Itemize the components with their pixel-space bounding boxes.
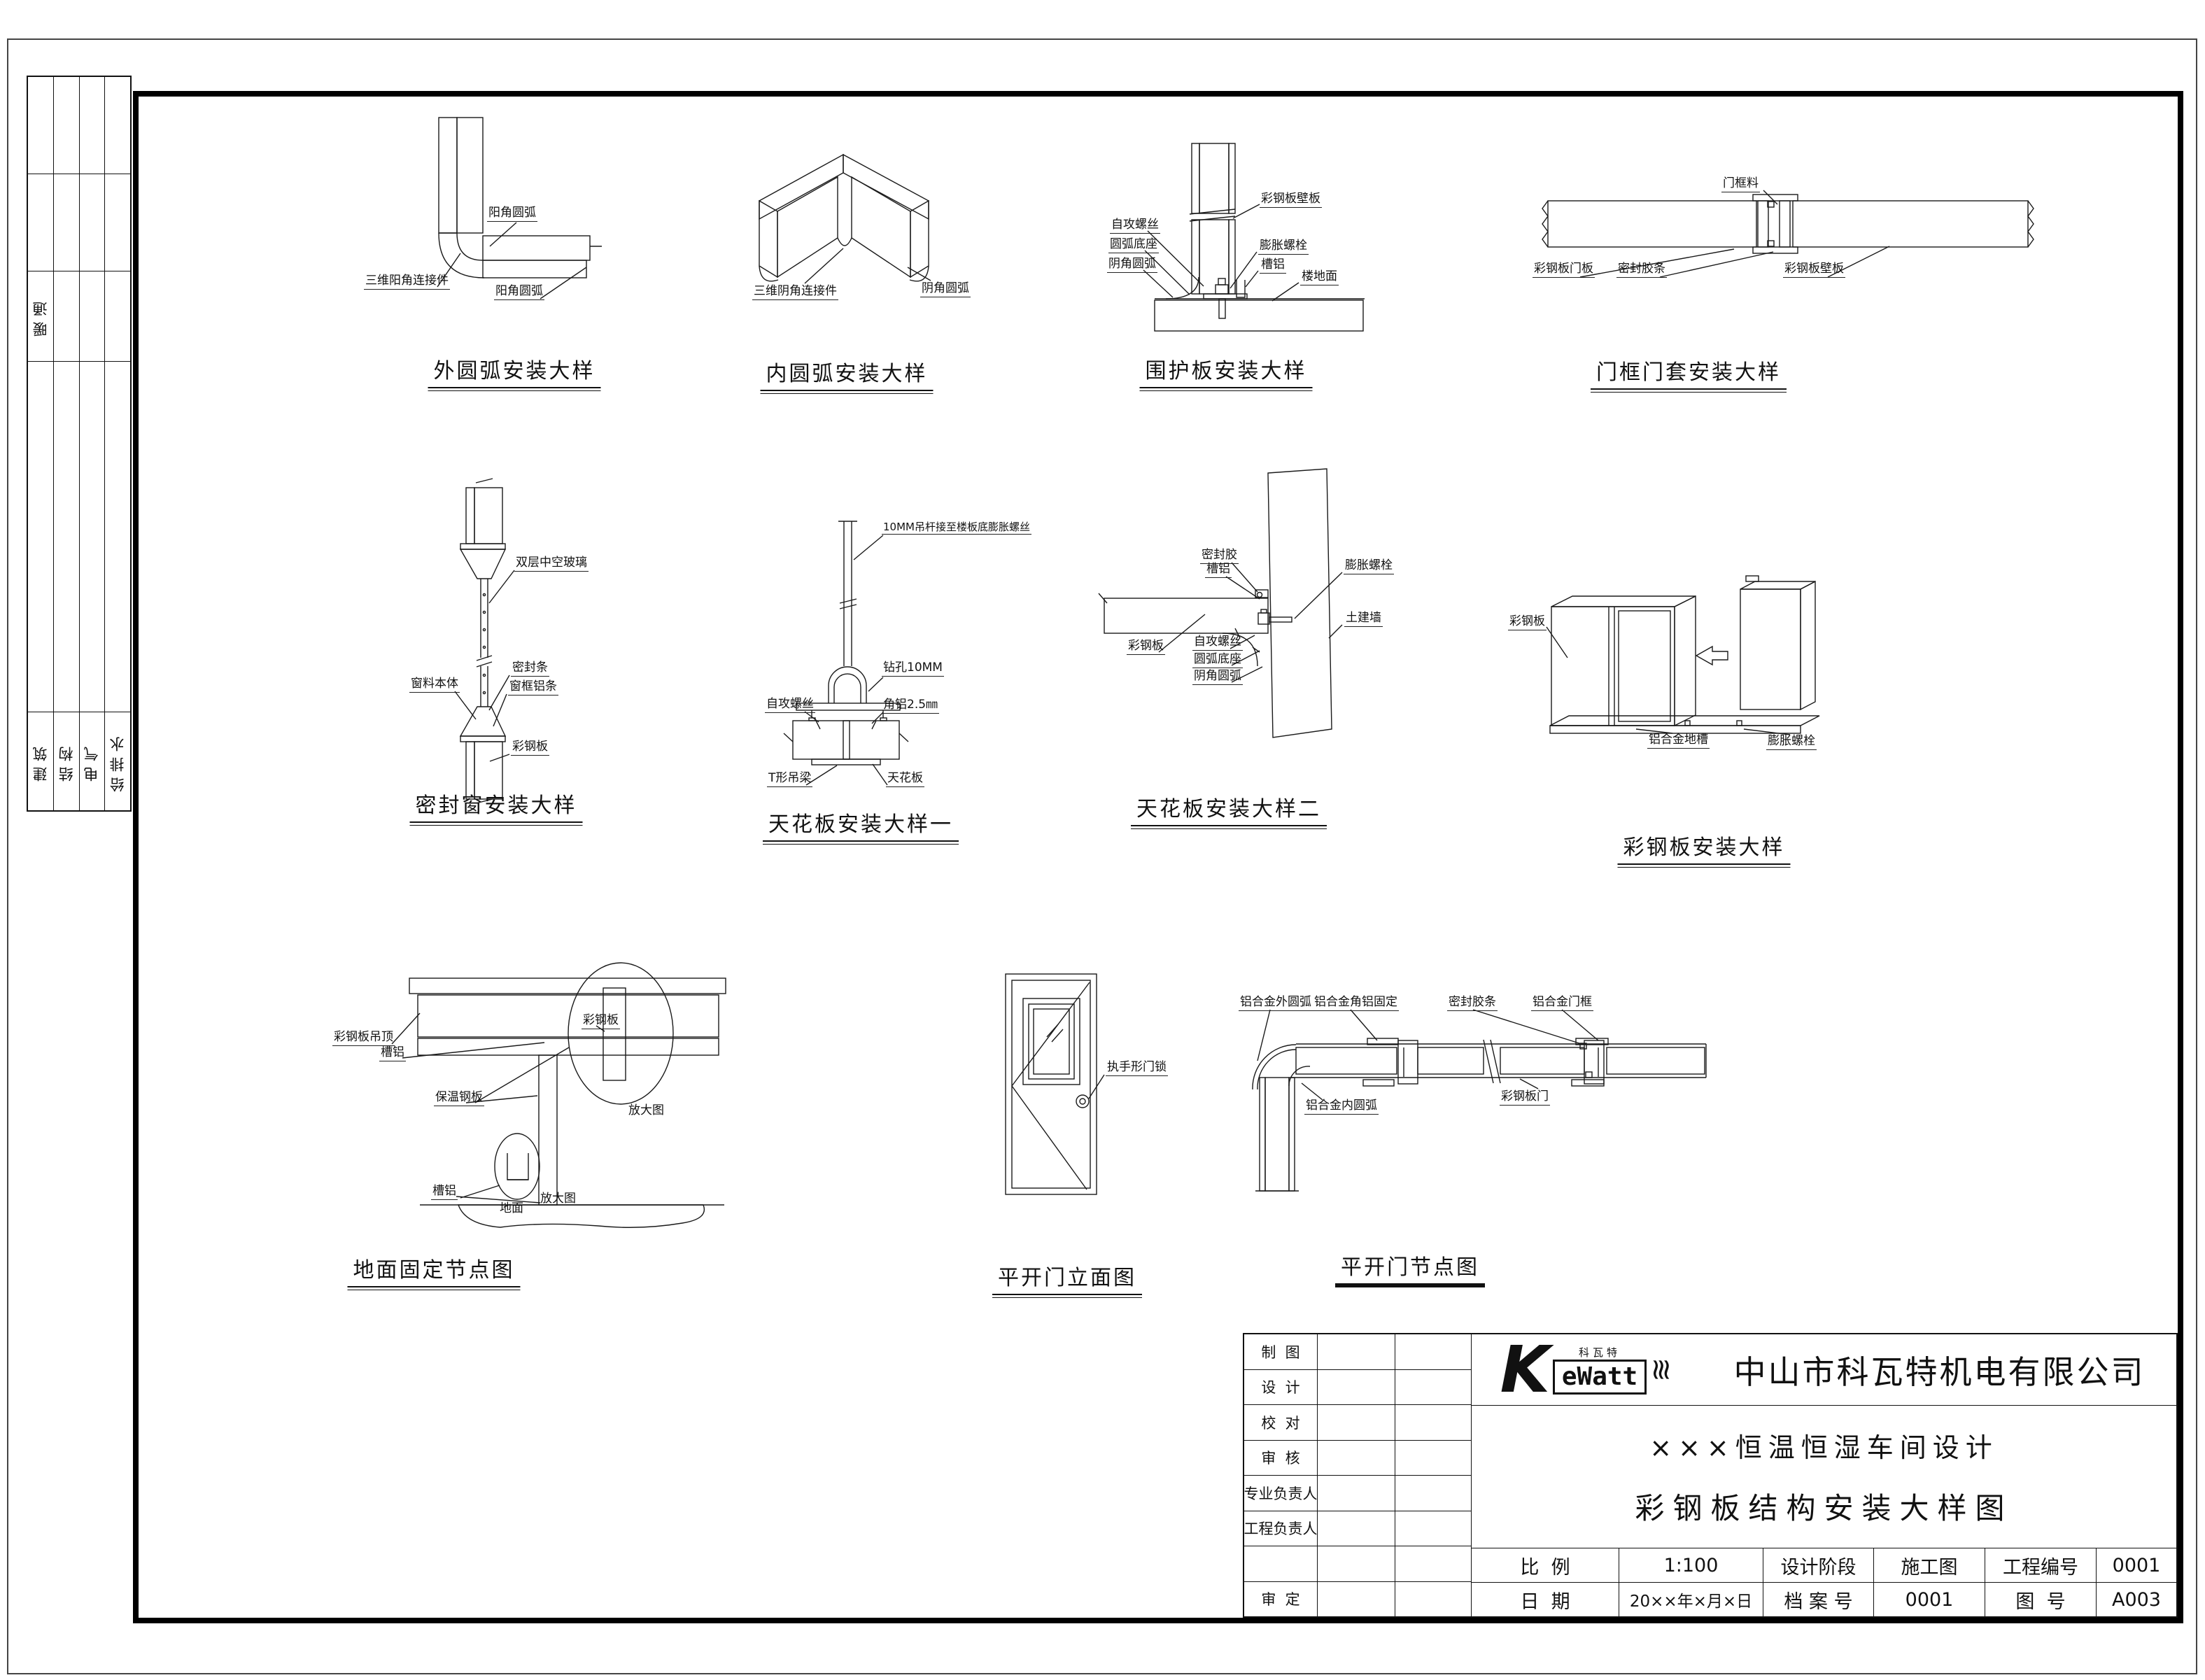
label-steel-panel-2: 彩钢板 bbox=[1127, 640, 1165, 655]
stage-value: 施工图 bbox=[1874, 1548, 1985, 1582]
label-self-tapping-screw: 自攻螺丝 bbox=[1110, 218, 1160, 234]
caption-outer-arc: 外圆弧安装大样 bbox=[428, 353, 601, 388]
label-expansion-bolt-2: 膨胀螺栓 bbox=[1344, 559, 1394, 574]
logo-chinese-name: 科瓦特 bbox=[1579, 1345, 1621, 1360]
label-inner-corner-arc-2: 阴角圆弧 bbox=[1192, 670, 1243, 685]
label-channel-aluminum-2: 槽铝 bbox=[1205, 563, 1232, 578]
date-value: 20××年×月×日 bbox=[1619, 1583, 1763, 1616]
label-alu-angle-fixing: 铝合金角铝固定 bbox=[1313, 996, 1399, 1011]
title-block: 制 图 设 计 校 对 审 核 专业负责人 工程负责人 审 定 K 科瓦特 eW… bbox=[1243, 1333, 2178, 1618]
project-no-label: 工程编号 bbox=[1985, 1548, 2097, 1582]
label-expansion-bolt-3: 膨胀螺栓 bbox=[1766, 735, 1817, 750]
row-drafter: 制 图 bbox=[1244, 1334, 1318, 1369]
row-reviewer: 审 核 bbox=[1244, 1441, 1318, 1476]
label-drill-hole: 钻孔10MM bbox=[882, 661, 944, 677]
caption-ceiling-2: 天花板安装大样二 bbox=[1131, 791, 1327, 826]
project-name: ×××恒温恒湿车间设计 bbox=[1649, 1426, 1999, 1464]
label-hanger-rod: 10MM吊杆接至楼板底膨胀螺丝 bbox=[882, 521, 1031, 535]
drawing-no-value: A003 bbox=[2097, 1583, 2176, 1616]
logo-wordmark: eWatt bbox=[1553, 1360, 1647, 1394]
company-name: 中山市科瓦特机电有限公司 bbox=[1703, 1334, 2176, 1405]
archive-label: 档 案 号 bbox=[1763, 1583, 1874, 1616]
drawing-title: 彩钢板结构安装大样图 bbox=[1635, 1485, 2013, 1527]
label-inner-corner-arc: 阴角圆弧 bbox=[1107, 257, 1157, 273]
label-enlarged-view-2: 放大图 bbox=[539, 1192, 577, 1207]
label-enlarged-view: 放大图 bbox=[627, 1104, 665, 1119]
row-designer: 设 计 bbox=[1244, 1370, 1318, 1405]
label-floor-surface: 楼地面 bbox=[1300, 270, 1339, 285]
cad-drawing-sheet: 暖通 建筑 结构 电气 给排水 bbox=[0, 0, 2205, 1680]
caption-sealed-window: 密封窗安装大样 bbox=[410, 788, 583, 823]
drawing-no-label: 图 号 bbox=[1985, 1583, 2097, 1616]
date-label: 日 期 bbox=[1472, 1583, 1619, 1616]
label-expansion-bolt: 膨胀螺栓 bbox=[1258, 239, 1309, 255]
caption-door-elevation: 平开门立面图 bbox=[992, 1260, 1142, 1295]
figure-sealed-window-detail bbox=[455, 479, 514, 803]
figure-ceiling-detail-2 bbox=[1099, 469, 1342, 737]
caption-floor-node: 地面固定节点图 bbox=[348, 1252, 521, 1287]
label-lever-door-lock: 执手形门锁 bbox=[1106, 1061, 1168, 1076]
caption-enclosure: 围护板安装大样 bbox=[1140, 353, 1313, 388]
label-channel-aluminum-3: 槽铝 bbox=[379, 1046, 406, 1061]
title-block-signatures: 制 图 设 计 校 对 审 核 专业负责人 工程负责人 审 定 bbox=[1244, 1334, 1472, 1616]
caption-door-frame: 门框门套安装大样 bbox=[1591, 355, 1787, 390]
label-steel-door: 彩钢板门 bbox=[1500, 1090, 1550, 1106]
label-door-frame-material: 门框料 bbox=[1721, 177, 1760, 192]
label-window-body: 窗料本体 bbox=[409, 677, 460, 693]
figure-inner-arc-detail bbox=[759, 155, 931, 283]
label-t-beam: T形吊梁 bbox=[767, 772, 812, 787]
label-window-frame-strip: 窗框铝条 bbox=[508, 680, 558, 696]
row-project-lead: 工程负责人 bbox=[1244, 1511, 1318, 1546]
label-corner-arc-2: 阳角圆弧 bbox=[494, 285, 544, 300]
label-3d-outer-connector: 三维阳角连接件 bbox=[364, 274, 450, 290]
row-discipline-lead: 专业负责人 bbox=[1244, 1476, 1318, 1511]
label-steel-panel: 彩钢板 bbox=[511, 740, 549, 756]
label-seal-strip-2: 密封条 bbox=[511, 661, 549, 677]
logo-zigzag-icon: ≋ bbox=[1644, 1357, 1679, 1382]
caption-ceiling-1: 天花板安装大样一 bbox=[763, 807, 959, 842]
label-alu-outer-arc: 铝合金外圆弧 bbox=[1239, 996, 1313, 1011]
label-arc-base: 圆弧底座 bbox=[1108, 238, 1159, 253]
label-seal-strip: 密封胶条 bbox=[1616, 262, 1667, 278]
caption-steel-install: 彩钢板安装大样 bbox=[1618, 830, 1791, 865]
label-ground: 地面 bbox=[498, 1202, 525, 1217]
label-steel-ceiling: 彩钢板吊顶 bbox=[332, 1031, 395, 1046]
label-steel-panel-3: 彩钢板 bbox=[1508, 615, 1547, 630]
label-insulated-steel-panel: 保温钢板 bbox=[434, 1091, 484, 1106]
caption-inner-arc: 内圆弧安装大样 bbox=[761, 356, 934, 391]
figure-ceiling-detail-1 bbox=[784, 521, 908, 785]
label-civil-wall: 土建墙 bbox=[1344, 612, 1383, 627]
label-arc-base-2: 圆弧底座 bbox=[1192, 653, 1243, 668]
label-angle-aluminum: 角铝2.5㎜ bbox=[882, 698, 939, 714]
figure-steel-panel-install-detail bbox=[1547, 576, 1819, 735]
label-seal-rubber-strip: 密封胶条 bbox=[1447, 996, 1498, 1011]
label-double-glass: 双层中空玻璃 bbox=[514, 556, 589, 572]
label-channel-aluminum-4: 槽铝 bbox=[431, 1185, 458, 1200]
label-steel-wall-panel-2: 彩钢板壁板 bbox=[1783, 262, 1845, 278]
label-corner-arc: 阳角圆弧 bbox=[487, 206, 537, 222]
figure-swing-door-elevation bbox=[1006, 974, 1104, 1194]
label-ceiling-panel: 天花板 bbox=[886, 772, 924, 787]
archive-value: 0001 bbox=[1874, 1583, 1985, 1616]
label-alu-door-frame: 铝合金门框 bbox=[1531, 996, 1593, 1011]
row-blank bbox=[1244, 1546, 1318, 1581]
figure-enclosure-panel-detail bbox=[1143, 143, 1365, 331]
label-3d-inner-connector: 三维阴角连接件 bbox=[752, 285, 838, 300]
scale-value: 1:100 bbox=[1619, 1548, 1763, 1582]
label-inner-arc: 阴角圆弧 bbox=[920, 282, 971, 297]
caption-door-node: 平开门节点图 bbox=[1335, 1250, 1485, 1287]
scale-label: 比 例 bbox=[1472, 1548, 1619, 1582]
label-alu-inner-arc: 铝合金内圆弧 bbox=[1304, 1099, 1379, 1115]
label-alu-floor-channel: 铝合金地槽 bbox=[1647, 733, 1710, 749]
kewatt-logo: K 科瓦特 eWatt ≋ bbox=[1472, 1334, 1703, 1405]
label-steel-door-panel: 彩钢板门板 bbox=[1533, 262, 1595, 278]
project-no-value: 0001 bbox=[2097, 1548, 2176, 1582]
label-steel-panel-4: 彩钢板 bbox=[582, 1014, 620, 1029]
label-self-tapping-screw-3: 自攻螺丝 bbox=[1192, 635, 1243, 651]
row-approver: 审 定 bbox=[1244, 1582, 1318, 1617]
label-self-tapping-screw-2: 自攻螺丝 bbox=[765, 698, 815, 713]
label-steel-wall-panel: 彩钢板壁板 bbox=[1260, 192, 1322, 208]
label-channel-aluminum: 槽铝 bbox=[1260, 258, 1286, 274]
stage-label: 设计阶段 bbox=[1763, 1548, 1874, 1582]
logo-k-mark: K bbox=[1500, 1344, 1550, 1396]
row-proofread: 校 对 bbox=[1244, 1405, 1318, 1440]
